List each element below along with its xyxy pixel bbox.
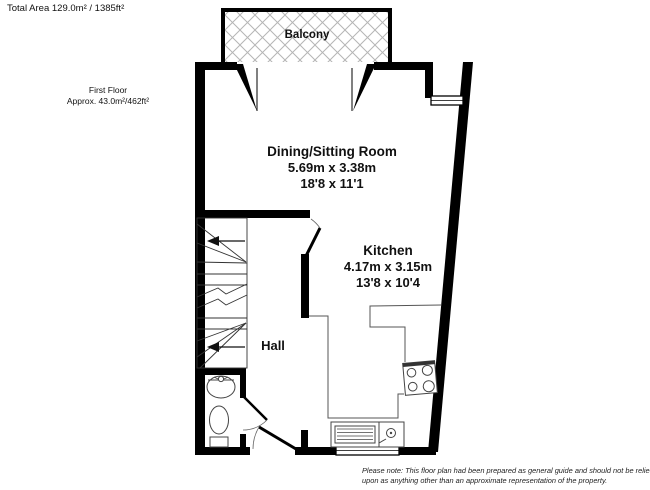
- total-area-label: Total Area 129.0m² / 1385ft²: [7, 3, 124, 14]
- dining-dim-imperial: 18'8 x 11'1: [267, 176, 397, 192]
- kitchen-door: [306, 219, 320, 256]
- room-label-dining: Dining/Sitting Room 5.69m x 3.38m 18'8 x…: [267, 144, 397, 192]
- kitchen-room-name: Kitchen: [344, 243, 432, 259]
- floor-area: Approx. 43.0m²/462ft²: [38, 96, 178, 107]
- toilet-icon: [210, 406, 229, 447]
- disclaimer-line-2: upon as anything other than an approxima…: [362, 476, 650, 486]
- kitchen-dim-imperial: 13'8 x 10'4: [344, 275, 432, 291]
- wall-top-left: [195, 62, 237, 70]
- wall-top-right: [374, 62, 433, 70]
- wc-door: [243, 396, 267, 430]
- french-door-leaf-right: [353, 64, 376, 111]
- wall-dining-hall: [195, 210, 310, 218]
- wall-kitchen-stub-upper: [301, 254, 309, 318]
- french-door-leaf-left: [234, 64, 257, 111]
- wc-fixtures: [207, 376, 235, 447]
- french-doors: [234, 64, 376, 111]
- stairs-direction-arrow-top: [207, 236, 245, 246]
- wall-left: [195, 62, 205, 455]
- room-label-hall: Hall: [261, 338, 285, 353]
- dining-room-name: Dining/Sitting Room: [267, 144, 397, 160]
- kitchen-sink-unit: [331, 422, 404, 447]
- floor-name: First Floor: [38, 85, 178, 96]
- basin-icon: [207, 376, 235, 398]
- wall-wc-top: [195, 368, 246, 375]
- wall-notch: [425, 70, 433, 98]
- wall-wc-right-upper: [240, 375, 246, 398]
- room-label-balcony: Balcony: [285, 29, 330, 41]
- floor-label-block: First Floor Approx. 43.0m²/462ft²: [38, 85, 178, 107]
- disclaimer-note: Please note: This floor plan had been pr…: [362, 466, 650, 485]
- floorplan-drawing: [0, 0, 650, 490]
- kitchen-dim-metric: 4.17m x 3.15m: [344, 259, 432, 275]
- dining-dim-metric: 5.69m x 3.38m: [267, 160, 397, 176]
- wall-kitchen-stub-lower: [301, 430, 308, 455]
- disclaimer-line-1: Please note: This floor plan had been pr…: [362, 466, 650, 476]
- wall-bottom-3: [399, 447, 436, 455]
- window-top-right: [431, 96, 463, 105]
- stairs-direction-arrow-bottom: [207, 342, 245, 352]
- floorplan-page: Total Area 129.0m² / 1385ft² First Floor…: [0, 0, 650, 490]
- doors: [243, 219, 320, 449]
- room-label-kitchen: Kitchen 4.17m x 3.15m 13'8 x 10'4: [344, 243, 432, 291]
- wall-wc-right-lower: [240, 434, 246, 455]
- entry-door: [253, 427, 296, 449]
- hob-icon: [403, 361, 438, 396]
- wall-right-slanted: [428, 62, 473, 452]
